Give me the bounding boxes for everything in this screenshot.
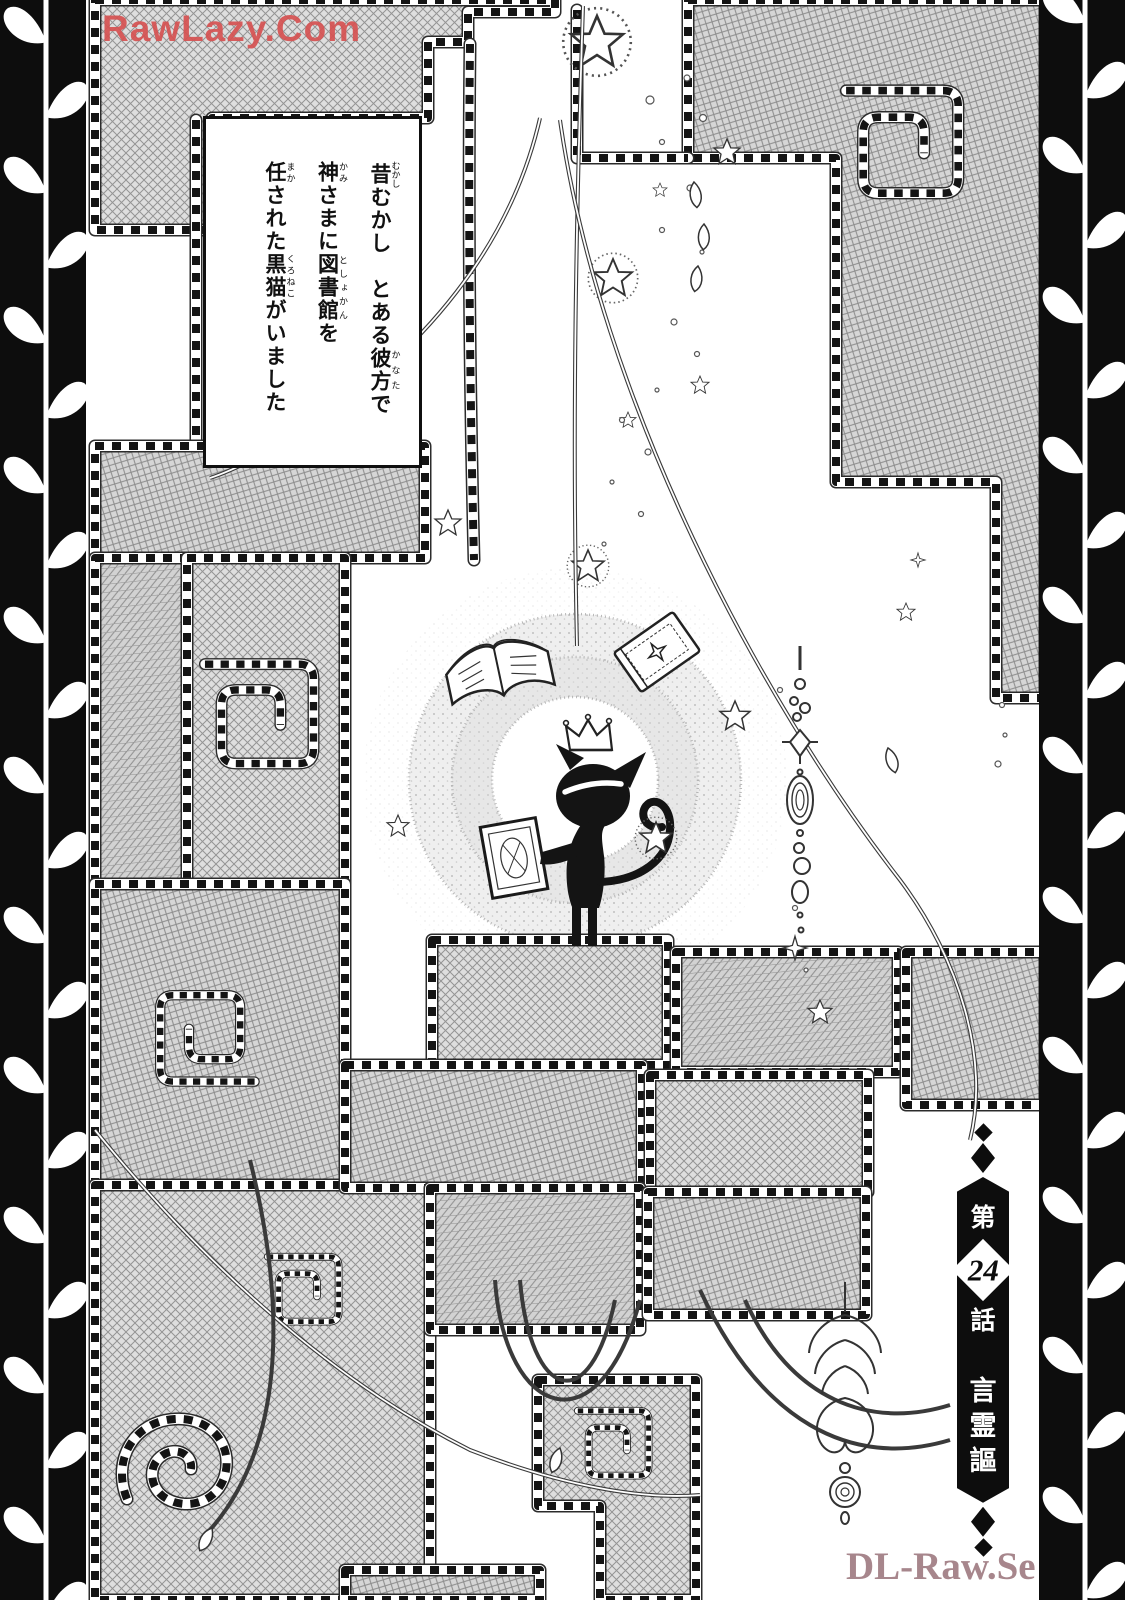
patch-brick [650, 1075, 868, 1192]
chapter-number: 24 [968, 1252, 999, 1288]
patch-brick [676, 952, 898, 1072]
watermark-bottom: DL-Raw.Se [846, 1544, 1036, 1589]
narration-text: 昔むかしむかし とある彼方かなたで神かみさまに図書館としょかんを任まかされた黒猫… [248, 161, 406, 451]
chapter-title: 言霊謳 [970, 1374, 997, 1479]
patch-brick [345, 1065, 642, 1188]
cat-leg [588, 906, 597, 946]
manga-page: 昔むかしむかし とある彼方かなたで神かみさまに図書館としょかんを任まかされた黒猫… [0, 0, 1125, 1600]
leaf-vine-border-right [1039, 0, 1125, 1600]
chapter-banner: 第 24 話 言霊謳 [946, 1124, 1020, 1556]
patch [95, 1185, 430, 1600]
banner-diamond-icon [971, 1507, 995, 1537]
chapter-title-char: 謳 [970, 1444, 997, 1479]
cat-leg [572, 906, 581, 946]
watermark-top: RawLazy.Com [102, 8, 361, 50]
cat-head [556, 764, 630, 828]
leaf-vine-border-left [0, 0, 86, 1600]
banner-diamond-icon [971, 1143, 995, 1173]
patch [95, 558, 187, 884]
patch-brick [432, 940, 668, 1065]
chapter-number-diamond: 24 [952, 1239, 1014, 1301]
banner-diamond-icon [974, 1123, 992, 1141]
narration-box: 昔むかしむかし とある彼方かなたで神かみさまに図書館としょかんを任まかされた黒猫… [203, 116, 422, 468]
patch-brick [648, 1192, 866, 1315]
chapter-prefix: 第 [970, 1203, 995, 1234]
patch-brick [430, 1188, 640, 1330]
chapter-suffix: 話 [970, 1306, 995, 1337]
chapter-title-char: 言 [970, 1374, 997, 1409]
patch [187, 558, 345, 884]
held-book-icon [480, 818, 548, 899]
chapter-title-char: 霊 [970, 1409, 997, 1444]
patch [95, 884, 345, 1185]
banner-body: 第 24 話 言霊謳 [957, 1177, 1009, 1503]
